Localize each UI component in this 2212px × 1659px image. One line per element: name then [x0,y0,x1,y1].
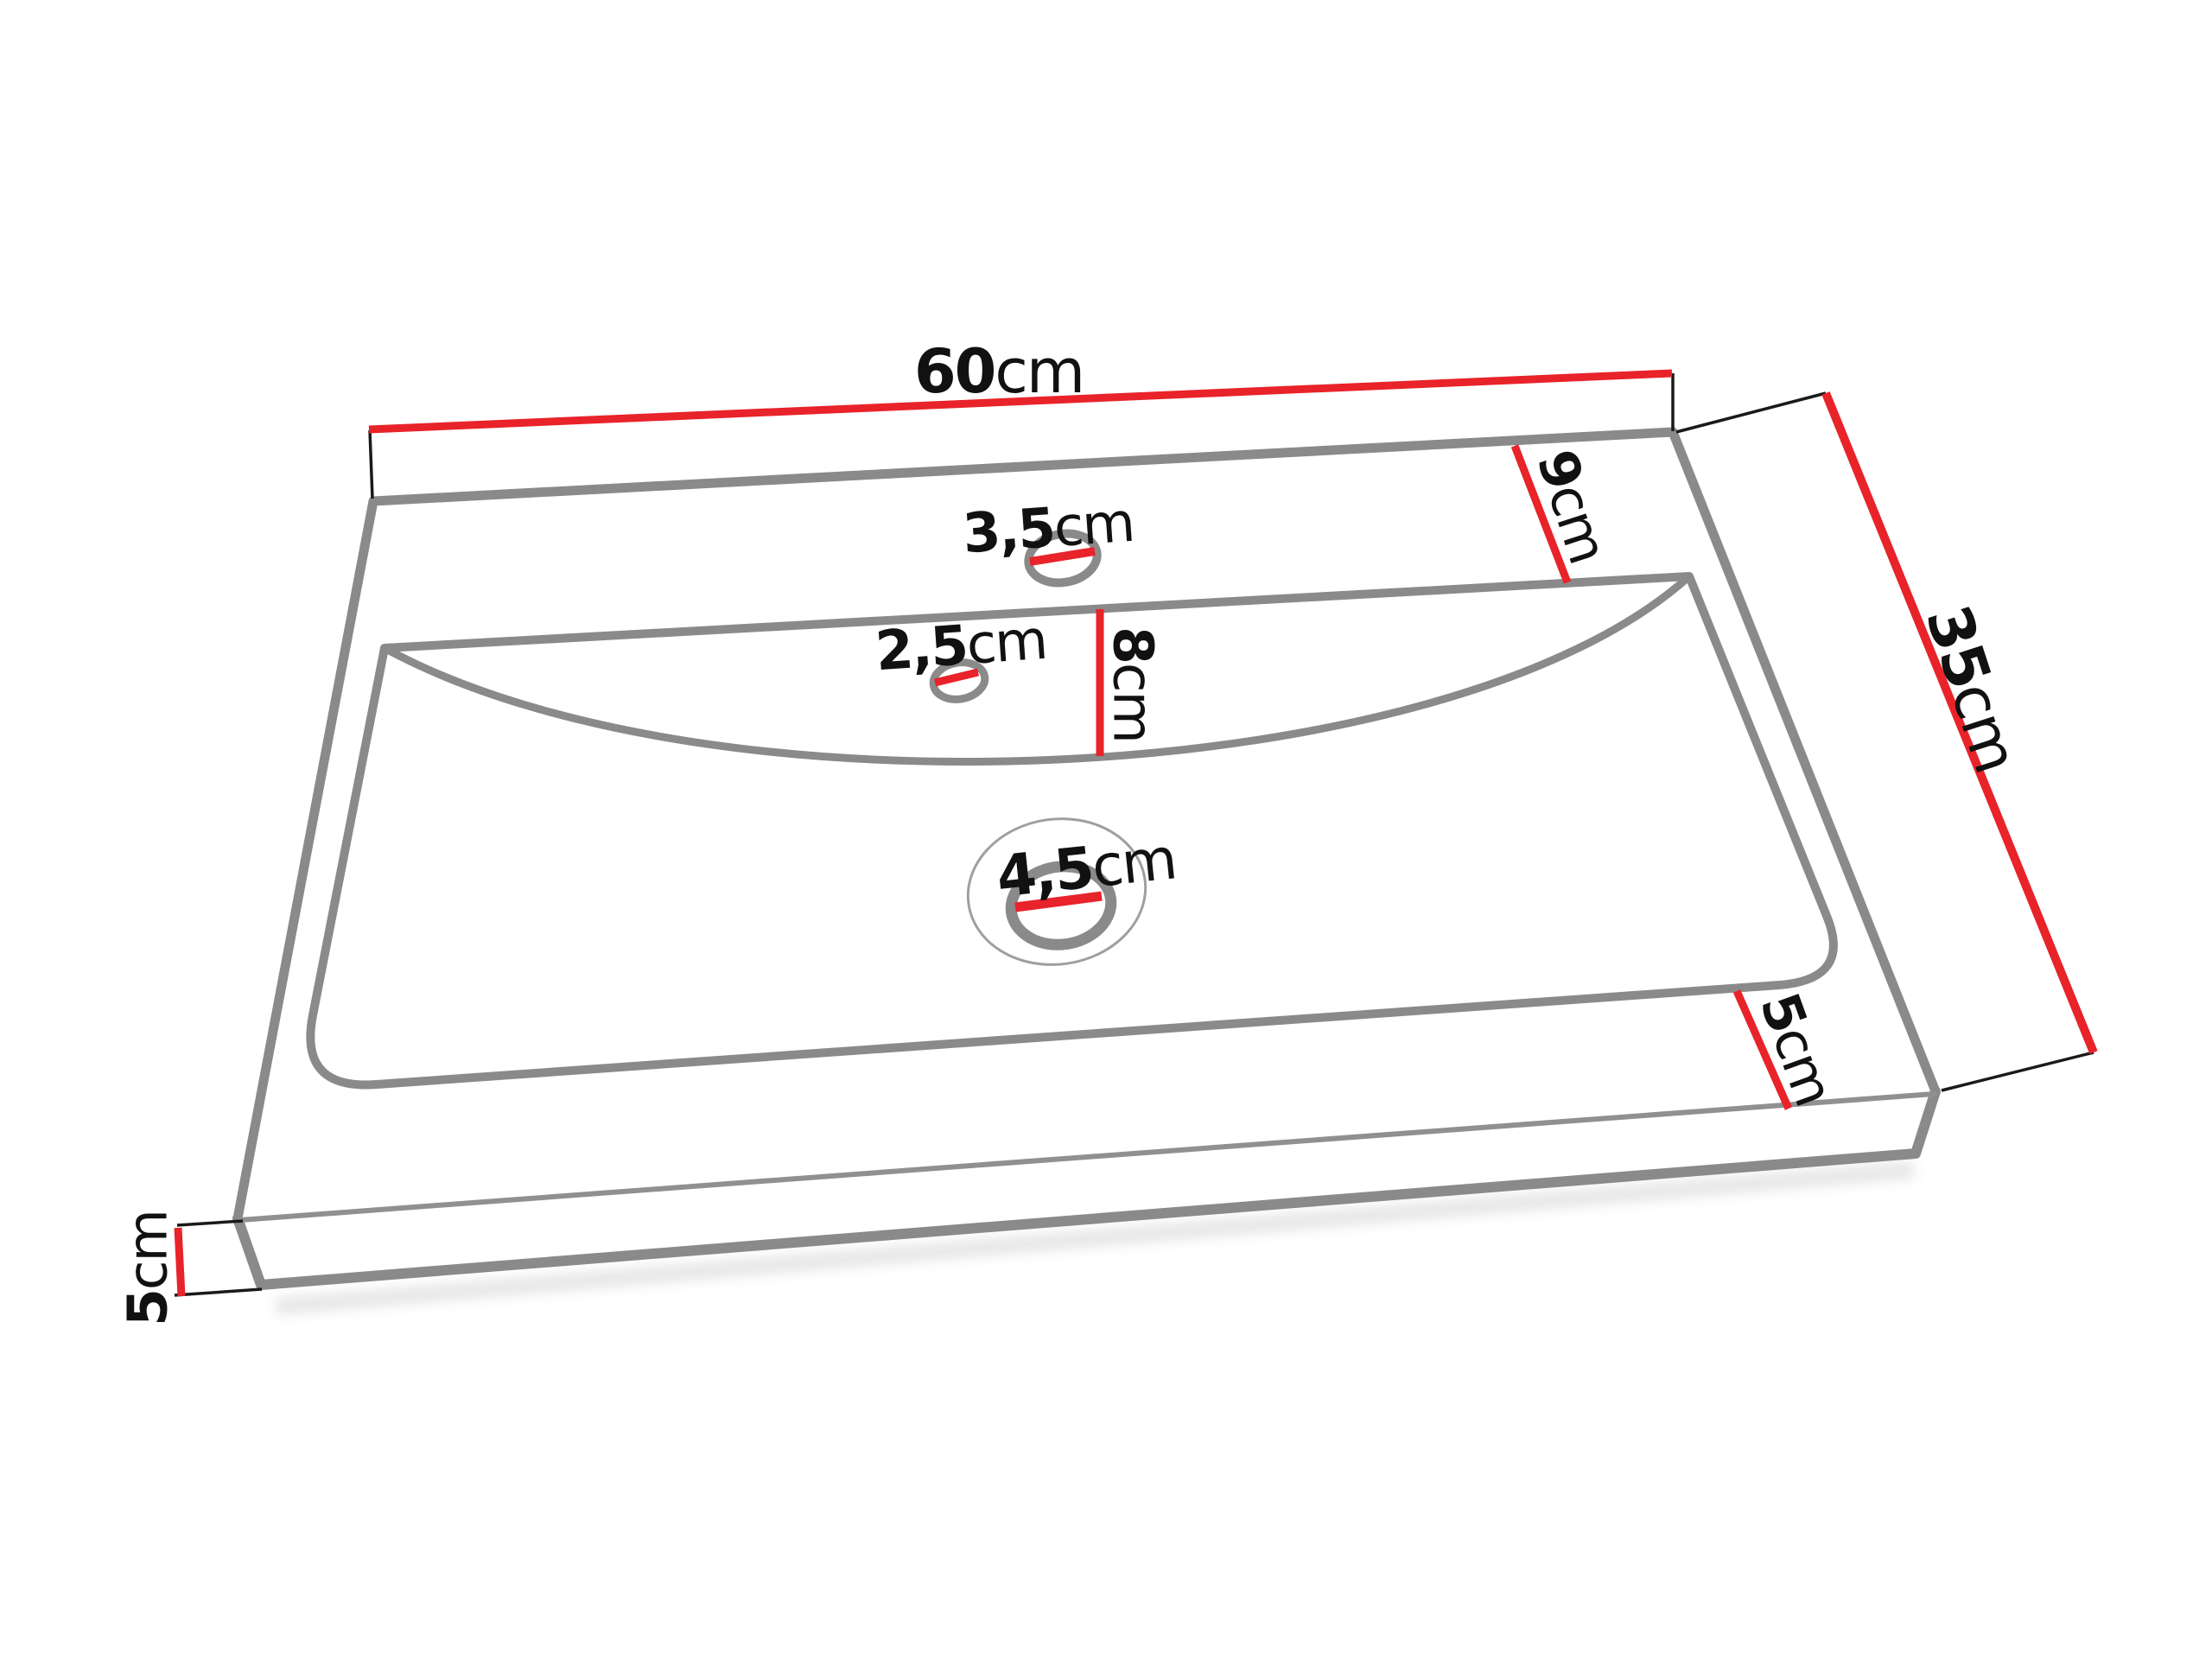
dim-label-basin-depth: 8cm [1106,626,1160,742]
dim-label-overflow-hole: 2,5cm [874,613,1048,679]
dim-label-slab-thickness: 5cm [121,1211,175,1326]
dim-unit: cm [117,1211,180,1290]
slab-shadow [276,1170,1914,1306]
dim-unit: cm [1089,825,1179,900]
tick-depth-bottom [1942,1052,2094,1090]
dim-label-faucet-hole: 3,5cm [961,495,1135,562]
dim-value: 2,5 [874,613,969,683]
tick-thickness-bottom [175,1289,262,1295]
dim-value: 60 [914,336,995,407]
dim-value: 3,5 [961,496,1056,565]
dim-unit: cm [964,608,1048,677]
basin-opening-outline [310,576,1834,1085]
dim-unit: cm [1052,491,1135,559]
dim-unit: cm [1102,663,1165,742]
tick-depth-top [1676,393,1826,432]
dim-value: 4,5 [994,834,1096,910]
dim-value: 8 [1102,626,1165,663]
tick-thickness-top [177,1221,243,1225]
dim-label-top-width: 60cm [914,341,1084,402]
washbasin-line-art [0,0,2212,1659]
slab-front-edge [240,1094,1934,1220]
tick-top-left [370,430,372,499]
dim-value: 5 [117,1290,180,1326]
washbasin-diagram: 60cm 3,5cm 2,5cm 8cm 4,5cm 9cm 35cm 5cm … [0,0,2212,1659]
dim-unit: cm [995,336,1084,407]
